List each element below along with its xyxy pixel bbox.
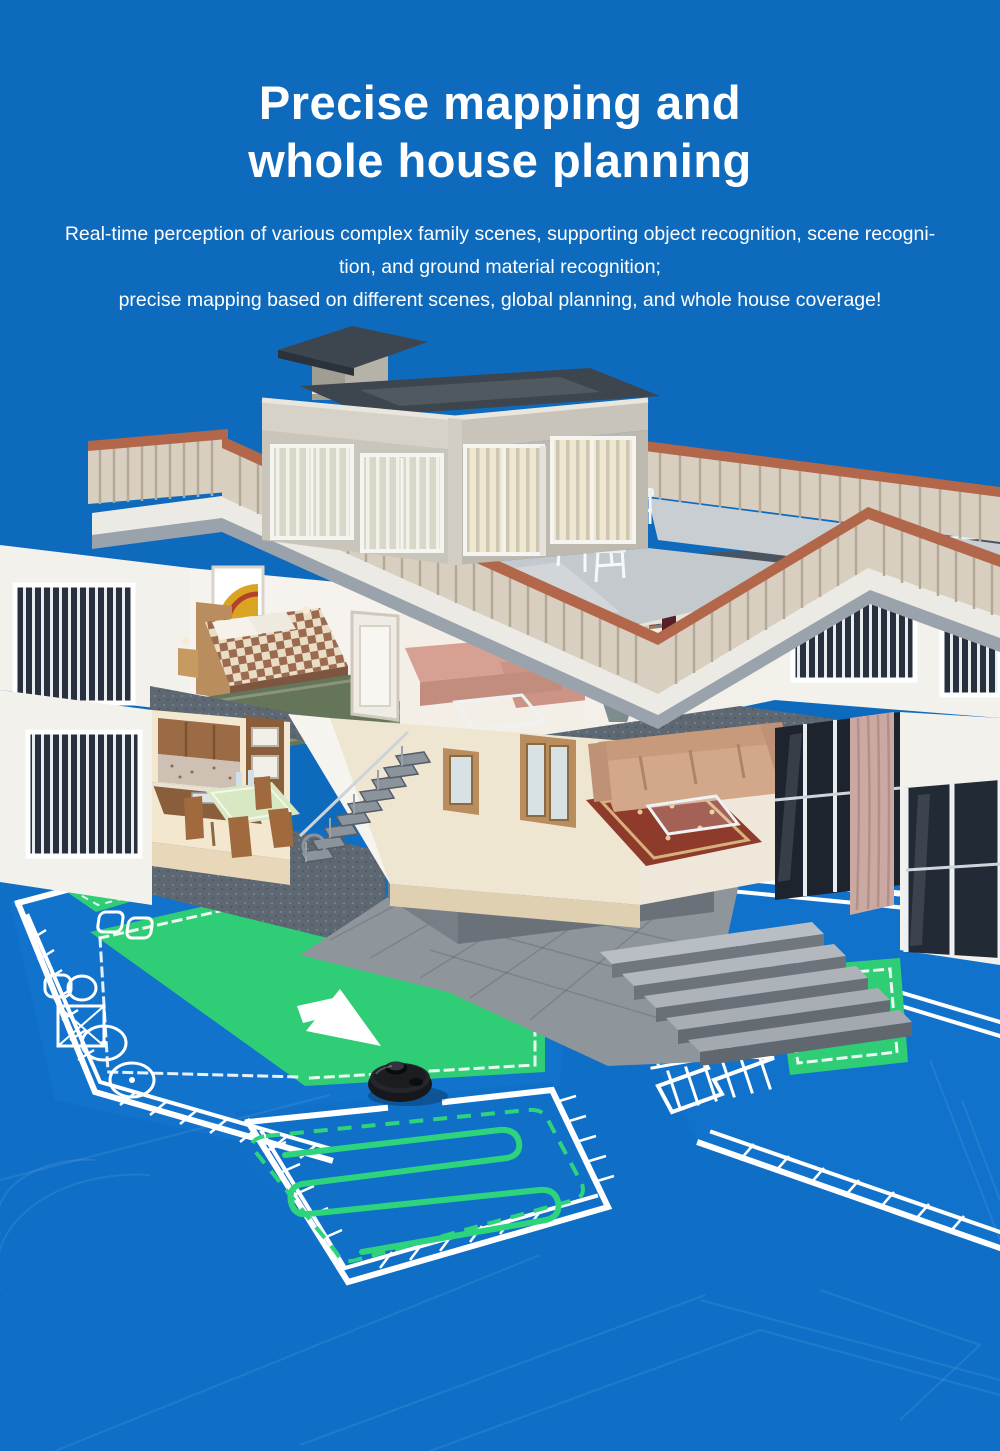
marketing-banner: Precise mapping and whole house planning… xyxy=(0,0,1000,1451)
kitchen xyxy=(152,710,300,885)
subtitle-line-1: Real-time perception of various complex … xyxy=(0,218,1000,251)
curtain xyxy=(850,712,894,915)
railing-left xyxy=(88,429,228,504)
sliding-glass-doors xyxy=(906,780,1000,958)
house xyxy=(0,326,1000,965)
title-line-1: Precise mapping and xyxy=(0,74,1000,132)
subtitle-line-3: precise mapping based on different scene… xyxy=(0,284,1000,317)
penthouse xyxy=(262,326,660,566)
window-blinds xyxy=(28,732,140,856)
penthouse-glass-right xyxy=(455,430,648,565)
page-title: Precise mapping and whole house planning xyxy=(0,74,1000,190)
window-blinds xyxy=(15,585,133,703)
upper-door xyxy=(352,612,398,720)
glass-wall xyxy=(775,712,900,915)
title-line-2: whole house planning xyxy=(0,132,1000,190)
subtitle-line-2: tion, and ground material recognition; xyxy=(0,251,1000,284)
hero-text: Precise mapping and whole house planning… xyxy=(0,74,1000,317)
page-subtitle: Real-time perception of various complex … xyxy=(0,218,1000,317)
